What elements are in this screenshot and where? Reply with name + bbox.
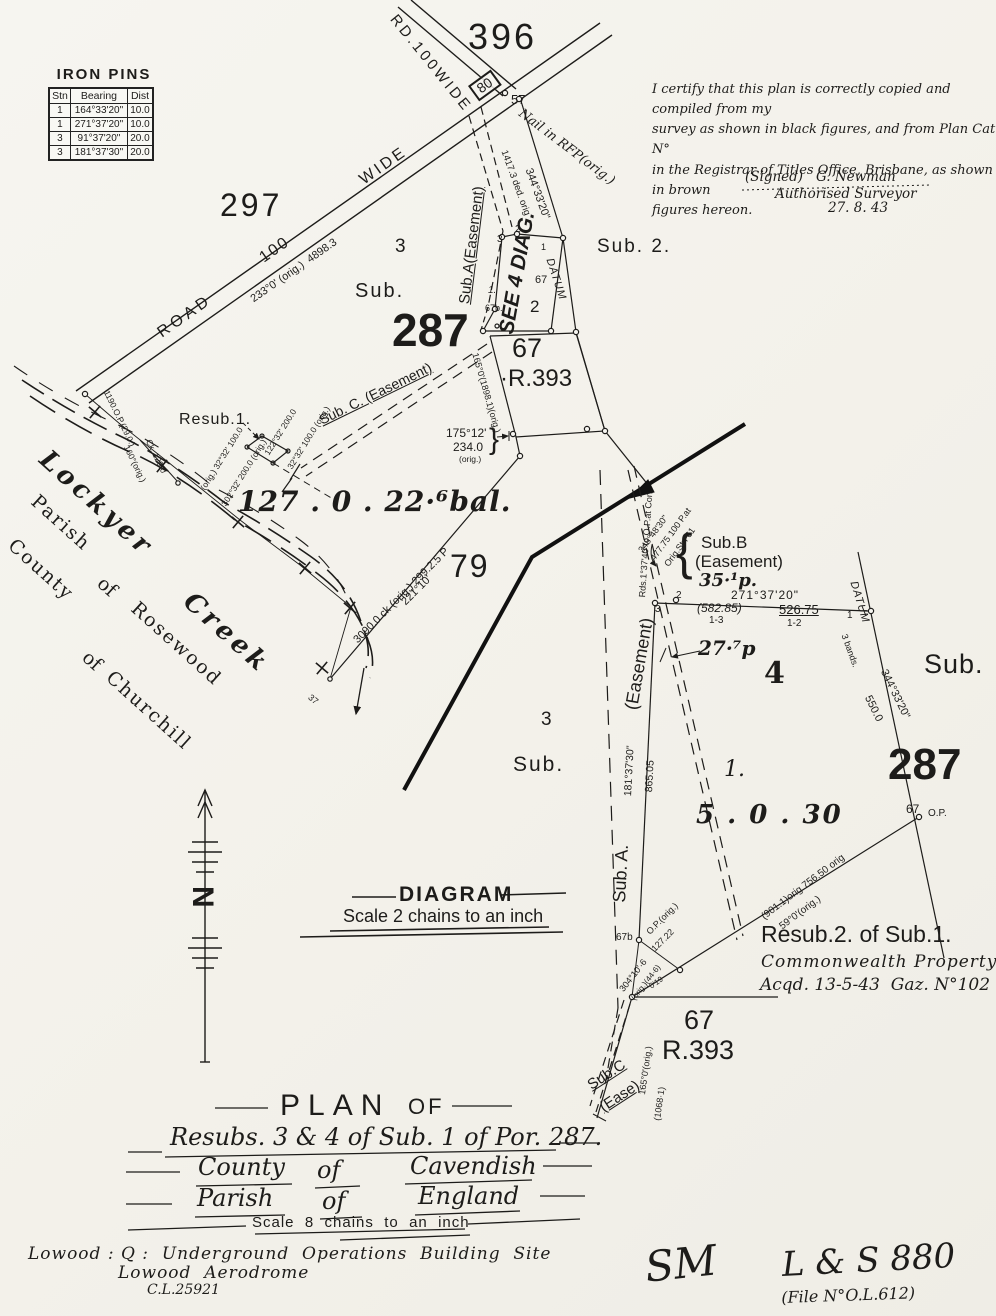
table-row: 1271°37'20"10.0 bbox=[49, 118, 153, 132]
ls-880-reference: L & S 880 bbox=[781, 1239, 956, 1284]
parish-title: Parish bbox=[197, 1186, 273, 1211]
thick-boundary bbox=[404, 424, 745, 790]
station-3-lower: 3 bbox=[655, 605, 661, 616]
cl-reference: C.L.25921 bbox=[147, 1283, 220, 1298]
parish-of-word: of bbox=[322, 1189, 345, 1214]
sm-annotation: SM bbox=[643, 1238, 719, 1289]
iron-pins-title: IRON PINS bbox=[48, 66, 160, 83]
parcel-4-number: 4 bbox=[764, 658, 785, 690]
plan-title-plan: PLAN bbox=[280, 1090, 390, 1122]
portion-79-label: 79 bbox=[450, 550, 490, 584]
county-title: County bbox=[198, 1155, 285, 1180]
segment-1-3: 1-3 bbox=[709, 616, 723, 627]
bearing-175-12: 175°12' bbox=[446, 427, 486, 440]
diagram-title: DIAGRAM bbox=[399, 884, 513, 906]
county-of-word: of bbox=[317, 1158, 340, 1183]
portion-396-label: 396 bbox=[468, 18, 537, 56]
segment-1-2: 1-2 bbox=[787, 619, 801, 630]
county-name: Cavendish bbox=[410, 1154, 537, 1179]
station-circles bbox=[82, 90, 921, 999]
portion-287-upper: 287 bbox=[392, 306, 469, 354]
parcel-1-marker-lower: 1. bbox=[724, 758, 745, 781]
r393-upper: ·R.393 bbox=[500, 366, 572, 391]
survey-plan-page: IRON PINS Stn Bearing Dist 1164°33'20"10… bbox=[0, 0, 996, 1316]
sub-3-number-lower: 3 bbox=[541, 710, 552, 730]
iron-pins-header-stn: Stn bbox=[49, 88, 70, 104]
brace-175: } bbox=[489, 424, 499, 456]
certification-line: survey as shown in black figures, and fr… bbox=[652, 120, 996, 160]
north-arrow-n-letter: N bbox=[187, 886, 219, 908]
sub-3-number-upper: 3 bbox=[395, 237, 406, 257]
iron-pins-header-dist: Dist bbox=[127, 88, 153, 104]
certification-line: I certify that this plan is correctly co… bbox=[652, 80, 996, 120]
acquired-note: Acqd. 13-5-43 Gaz. N°102 bbox=[760, 977, 990, 995]
table-row: 1164°33'20"10.0 bbox=[49, 104, 153, 118]
north-arrow bbox=[188, 790, 222, 1062]
lot-67-upper: 67 bbox=[512, 334, 542, 362]
distance-582: (582.85) bbox=[697, 602, 742, 615]
op-mark: O.P. bbox=[928, 809, 947, 820]
resub-2-title: Resub.2. of Sub.1. bbox=[761, 922, 952, 946]
distance-865: 865.05 bbox=[644, 760, 657, 793]
parish-name: England bbox=[418, 1184, 519, 1209]
easement-width-27-7: 27·⁷p bbox=[698, 638, 756, 659]
bearing-271-lower: 271°37'20" bbox=[731, 589, 799, 602]
portion-287-lower: 287 bbox=[888, 742, 961, 788]
station-1-upper: 1 bbox=[541, 243, 546, 252]
distance-234: 234.0 bbox=[453, 441, 483, 454]
table-row: 391°37'20"20.0 bbox=[49, 132, 153, 146]
iron-pins-header-bearing: Bearing bbox=[70, 88, 127, 104]
corner-67-op: 67 bbox=[906, 803, 919, 816]
plan-subject: Resubs. 3 & 4 of Sub. 1 of Por. 287. bbox=[170, 1125, 602, 1150]
sub-b-easement: (Easement) bbox=[695, 553, 783, 571]
sub-a-label-lower: Sub. A. bbox=[610, 844, 632, 903]
station-3-upper: 3 bbox=[497, 235, 503, 246]
aerodrome-note: Lowood Aerodrome bbox=[118, 1265, 309, 1283]
corner-67b-upper: 67b. bbox=[485, 304, 503, 313]
parcel-1-marker-upper: 1. bbox=[488, 286, 496, 297]
certification-date: 27. 8. 43 bbox=[828, 201, 888, 215]
parcel-2-number: 2 bbox=[530, 298, 539, 316]
signature: (Signed) G. Newman bbox=[745, 170, 896, 184]
table-row: 3181°37'30"20.0 bbox=[49, 146, 153, 161]
sub-3-label-upper: Sub. bbox=[355, 281, 404, 302]
resub-1-label: Resub.1. bbox=[179, 412, 251, 429]
sub-3-label-lower: Sub. bbox=[513, 754, 564, 776]
certification-line: figures hereon. bbox=[652, 201, 996, 221]
sub-b-label: Sub.B bbox=[701, 534, 747, 552]
plan-title-of: OF bbox=[408, 1095, 445, 1118]
corner-67b-lower: 67b bbox=[616, 933, 633, 944]
site-note: Lowood : Q : Underground Operations Buil… bbox=[28, 1246, 551, 1264]
station-57-label: 57 bbox=[511, 93, 525, 107]
area-127-0-22: 127 . 0 . 22·⁶bal. bbox=[238, 487, 512, 516]
portion-297-label: 297 bbox=[220, 189, 282, 223]
station-2-upper: 2 bbox=[515, 225, 521, 236]
station-1-lower: 1 bbox=[847, 611, 853, 622]
station-2-lower: 2 bbox=[676, 591, 682, 602]
distance-526: 526.75 bbox=[779, 603, 819, 617]
area-5-0-30: 5 . 0 . 30 bbox=[696, 802, 843, 829]
plan-scale: Scale 8 chains to an inch bbox=[252, 1215, 470, 1231]
r393-lower: R.393 bbox=[662, 1036, 734, 1064]
commonwealth-property-note: Commonwealth Property bbox=[761, 954, 996, 972]
sub-label-right: Sub. bbox=[924, 650, 984, 678]
sub-2-label: Sub. 2. bbox=[597, 237, 671, 257]
lot-67-small: 67 bbox=[535, 275, 547, 287]
orig-note-175: (orig.) bbox=[459, 455, 481, 464]
diagram-scale: Scale 2 chains to an inch bbox=[343, 907, 543, 926]
iron-pins-table: IRON PINS Stn Bearing Dist 1164°33'20"10… bbox=[48, 66, 160, 161]
lot-67-lower: 67 bbox=[684, 1006, 714, 1034]
